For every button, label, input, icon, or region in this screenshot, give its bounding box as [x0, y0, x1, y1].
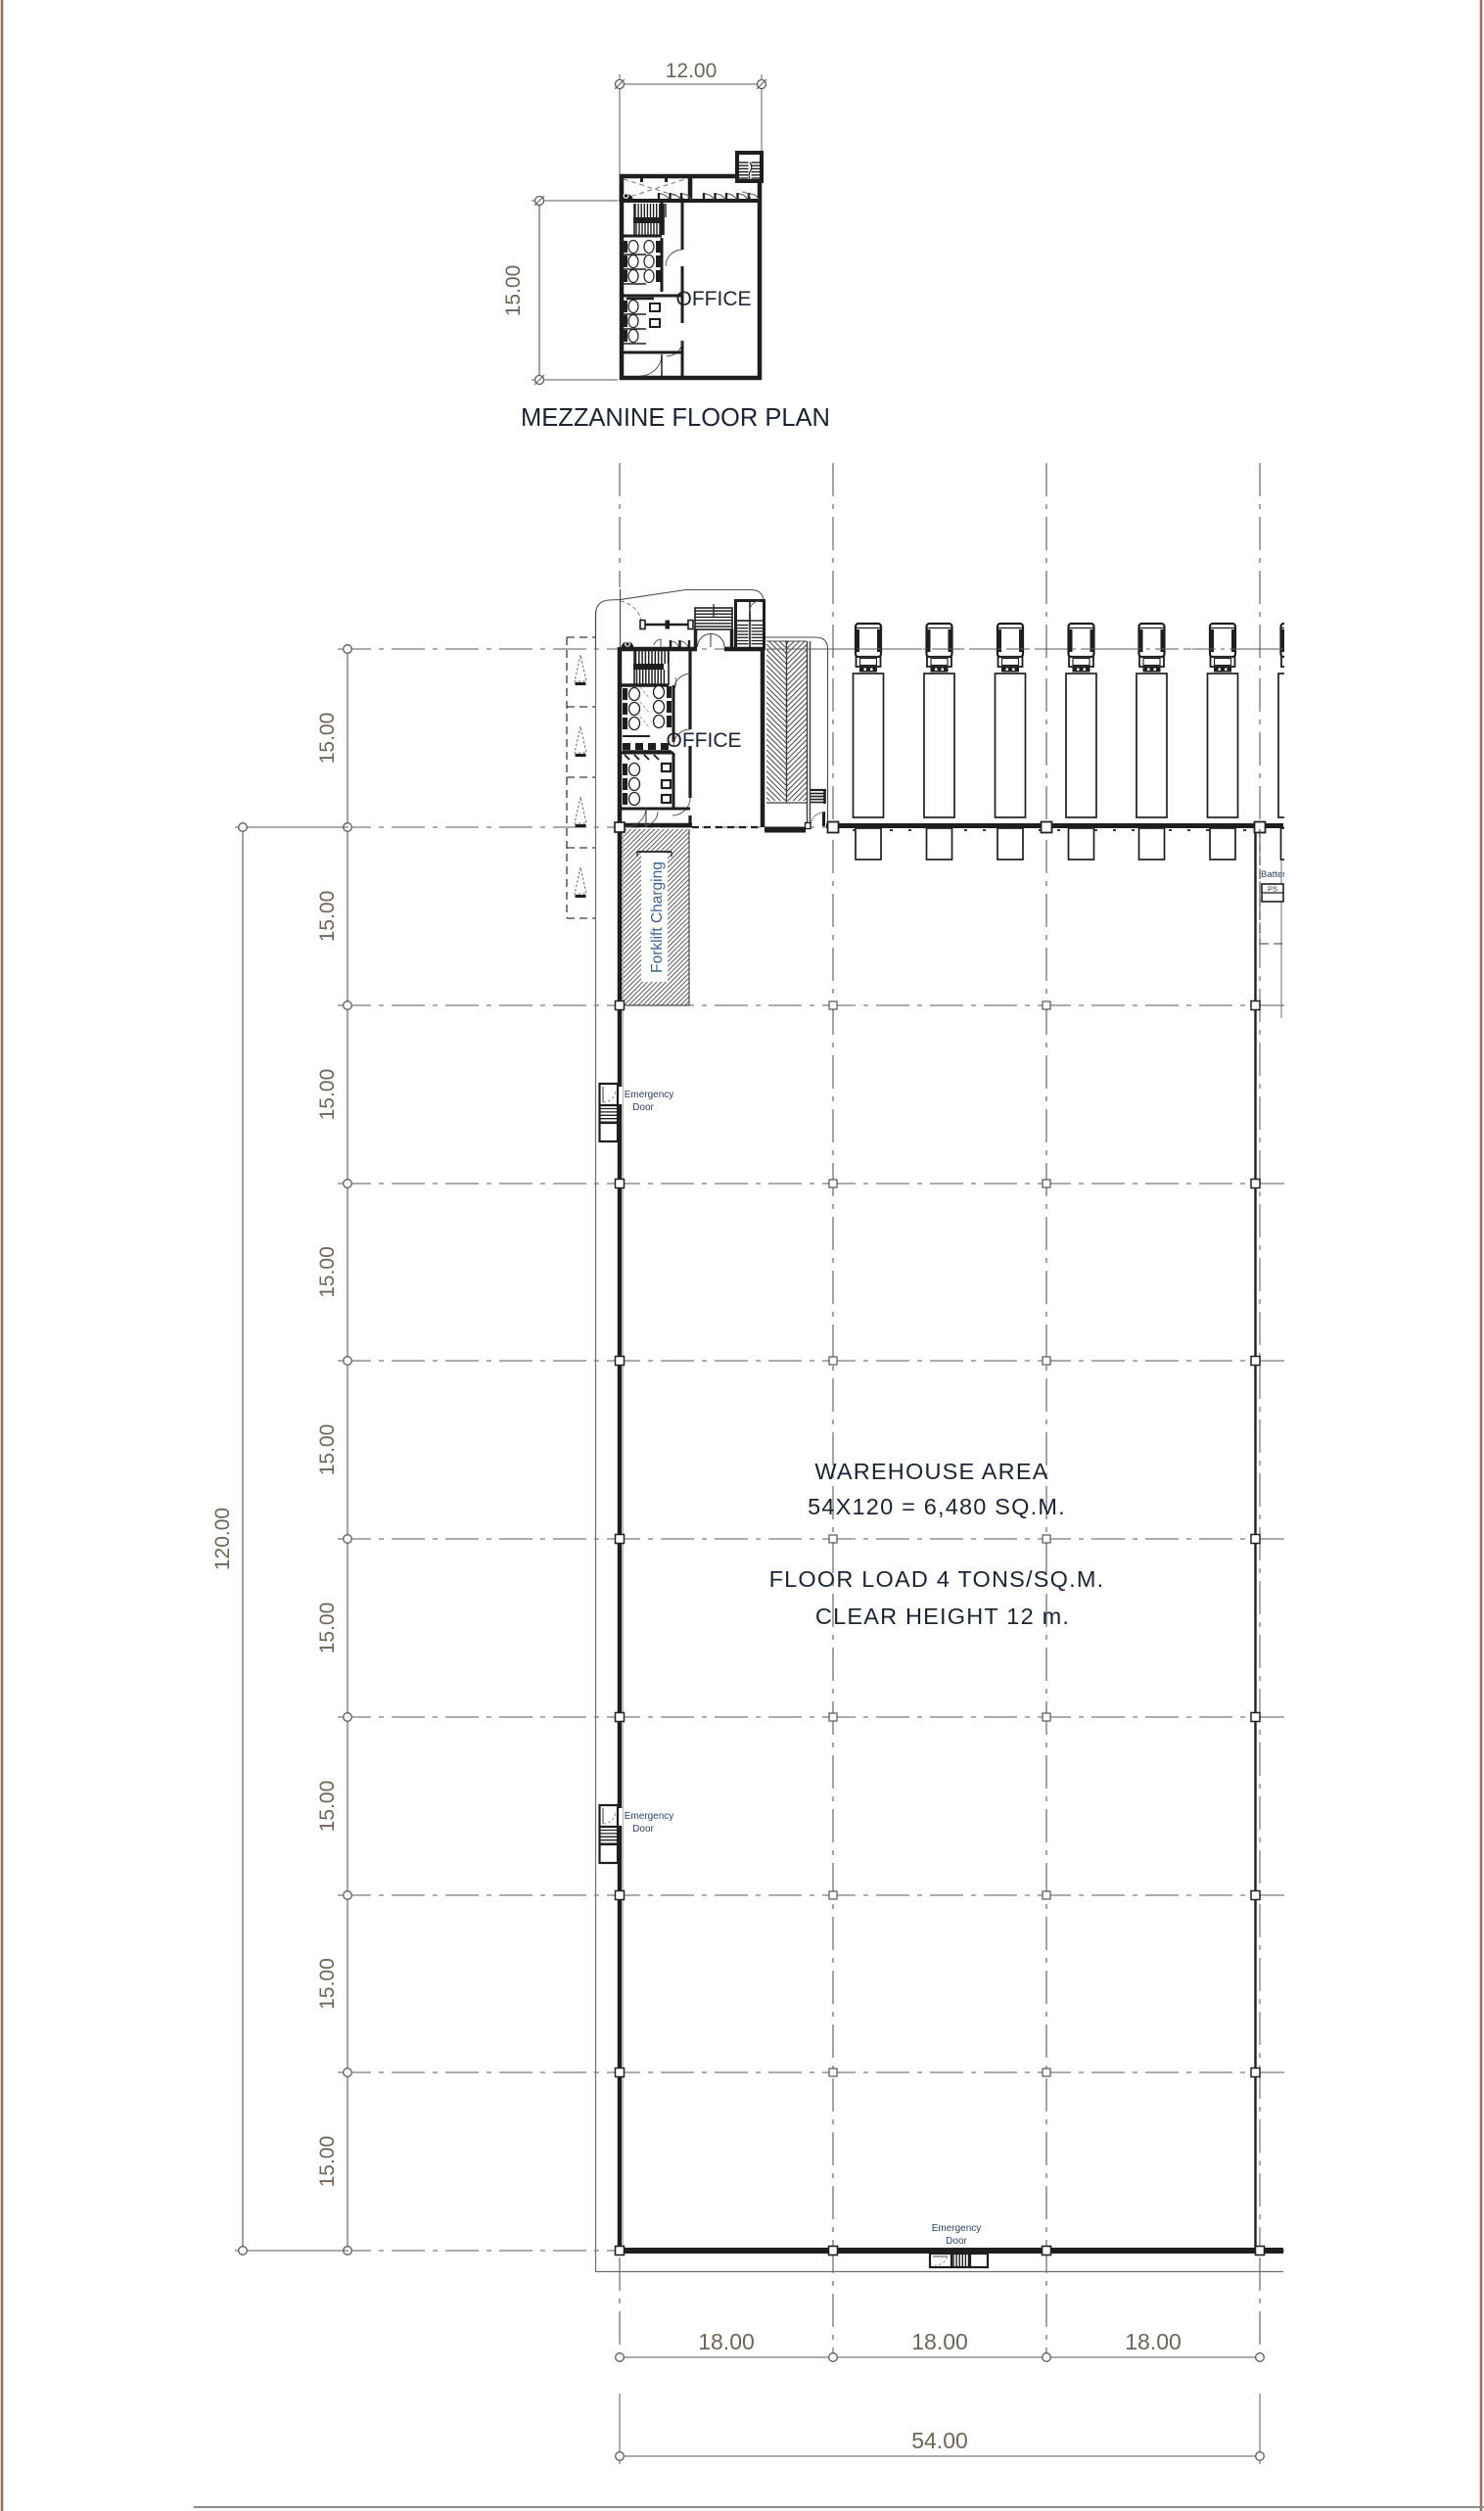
svg-text:15.00: 15.00 — [316, 1069, 339, 1121]
svg-text:MEZZANINE FLOOR PLAN: MEZZANINE FLOOR PLAN — [521, 404, 830, 432]
svg-text:OFFICE: OFFICE — [676, 288, 752, 310]
svg-text:WAREHOUSE AREA: WAREHOUSE AREA — [814, 1459, 1048, 1484]
svg-text:15.00: 15.00 — [316, 1424, 339, 1476]
svg-text:15.00: 15.00 — [316, 1603, 339, 1654]
svg-text:18.00: 18.00 — [911, 2329, 968, 2354]
svg-text:15.00: 15.00 — [502, 265, 525, 317]
svg-text:54X120 = 6,480 SQ.M.: 54X120 = 6,480 SQ.M. — [808, 1494, 1066, 1519]
svg-text:Door: Door — [946, 2236, 967, 2247]
svg-text:12.00: 12.00 — [666, 60, 718, 82]
svg-text:Emergency: Emergency — [625, 1090, 674, 1100]
svg-text:18.00: 18.00 — [698, 2329, 755, 2354]
svg-text:15.00: 15.00 — [316, 1781, 339, 1833]
svg-text:15.00: 15.00 — [316, 2136, 339, 2188]
svg-text:Forklift Charging: Forklift Charging — [649, 861, 666, 973]
svg-text:15.00: 15.00 — [316, 1958, 339, 2010]
svg-text:120.00: 120.00 — [211, 1508, 234, 1570]
svg-text:Door: Door — [632, 1102, 654, 1113]
svg-text:18.00: 18.00 — [1125, 2329, 1182, 2354]
svg-text:15.00: 15.00 — [316, 891, 339, 943]
svg-text:15.00: 15.00 — [316, 1246, 339, 1298]
svg-text:OFFICE: OFFICE — [667, 729, 742, 752]
svg-text:CLEAR HEIGHT 12 m.: CLEAR HEIGHT 12 m. — [815, 1604, 1070, 1629]
svg-text:54.00: 54.00 — [911, 2428, 968, 2453]
svg-text:Door: Door — [632, 1824, 654, 1835]
svg-text:15.00: 15.00 — [316, 713, 339, 765]
svg-text:FLOOR LOAD 4 TONS/SQ.M.: FLOOR LOAD 4 TONS/SQ.M. — [769, 1566, 1105, 1592]
svg-text:Emergency: Emergency — [932, 2223, 982, 2234]
svg-text:PS: PS — [1268, 885, 1277, 894]
svg-text:Emergency: Emergency — [625, 1811, 674, 1822]
